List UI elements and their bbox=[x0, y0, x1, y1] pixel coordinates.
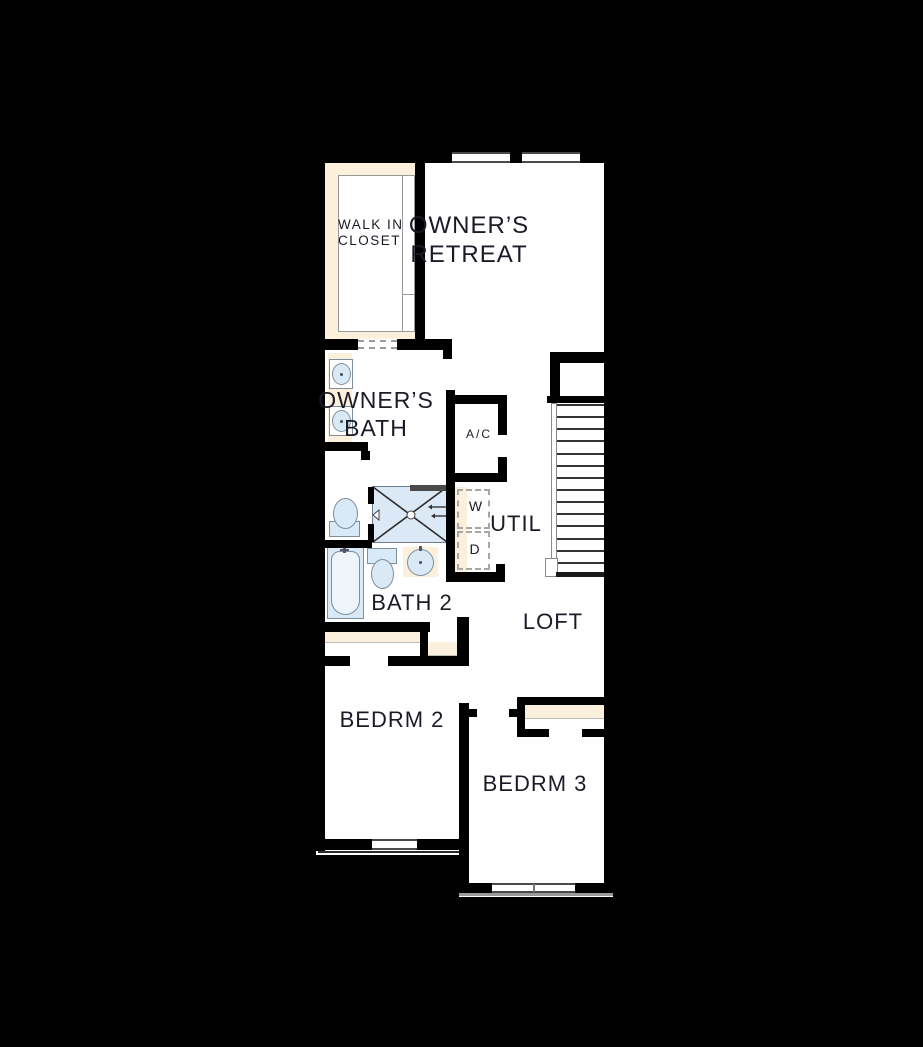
stair-tread bbox=[556, 477, 604, 479]
stair-tread bbox=[556, 538, 604, 540]
wall-bedroom3-closet-bottom-left bbox=[517, 729, 549, 737]
washer-label: W bbox=[469, 498, 483, 515]
walkin-closet-interior bbox=[338, 175, 415, 332]
wall-bath2-north bbox=[316, 540, 372, 548]
bedroom3-label: BEDRM 3 bbox=[483, 771, 588, 798]
bath2-sink-drain bbox=[419, 561, 422, 564]
wall-bath-north-right bbox=[397, 339, 452, 350]
window-bedroom3-mullion bbox=[533, 884, 535, 892]
wall-owners-bath-divider bbox=[316, 442, 368, 451]
wall-owners-bath-jamb bbox=[361, 451, 370, 460]
sill-line-bedroom3 bbox=[459, 893, 613, 896]
stair-tread bbox=[556, 428, 604, 430]
stair-tread bbox=[556, 440, 604, 442]
bath2-sink-faucet bbox=[419, 546, 422, 551]
window-retreat-2 bbox=[522, 152, 580, 163]
closet-shelf-line-vertical bbox=[402, 175, 403, 332]
wall-ac-util-divider bbox=[446, 473, 507, 482]
wall-util-bottom bbox=[446, 572, 505, 582]
bathtub-basin bbox=[331, 551, 360, 615]
stair-tread bbox=[556, 550, 604, 552]
walkin-closet-label: WALK IN CLOSET bbox=[338, 217, 404, 250]
foundation-line-bedroom2 bbox=[318, 851, 462, 853]
stair-tread bbox=[556, 513, 604, 515]
floorplan-canvas: WALK IN CLOSET OWNER’S RETREAT OWNER’S B… bbox=[0, 0, 923, 1047]
stair-treads bbox=[556, 404, 604, 576]
owners-toilet-bowl bbox=[333, 498, 358, 529]
wall-shower-stub-top bbox=[368, 487, 374, 504]
owners-retreat-label-line2: RETREAT bbox=[409, 240, 529, 269]
wall-bedroom2-closet-bottom-left bbox=[316, 656, 350, 666]
wall-bedroom3-closet-bottom-right bbox=[582, 729, 604, 737]
stair-tread bbox=[556, 416, 604, 418]
vanity-sink-1-drain bbox=[340, 373, 343, 376]
bedroom3-closet-shelf bbox=[525, 705, 604, 719]
stair-bottom-tread bbox=[556, 572, 604, 577]
wall-landing-bottom bbox=[547, 396, 613, 403]
stair-tread bbox=[556, 489, 604, 491]
shower bbox=[372, 486, 448, 543]
wall-bath-north-left bbox=[316, 339, 358, 350]
util-label: UTIL bbox=[490, 511, 542, 538]
stair-tread bbox=[556, 562, 604, 564]
wall-ac-jamb-lower bbox=[498, 457, 507, 474]
window-bedroom2 bbox=[372, 839, 417, 850]
wall-right bbox=[604, 151, 613, 894]
owners-bath-label: OWNER’S BATH bbox=[318, 386, 434, 442]
wall-left bbox=[316, 151, 325, 851]
closet-dashed-opening bbox=[358, 340, 397, 349]
wall-bath2-south bbox=[316, 622, 430, 632]
bedroom2-closet-shelf bbox=[325, 632, 420, 643]
bath2-label: BATH 2 bbox=[371, 590, 452, 617]
wall-ac-jamb-upper bbox=[498, 404, 507, 435]
dryer-label: D bbox=[469, 541, 480, 558]
stair-tread bbox=[556, 525, 604, 527]
wall-ac-top bbox=[446, 395, 507, 404]
closet-shelf-line-horizontal bbox=[402, 294, 415, 295]
shower-glass-door bbox=[410, 485, 448, 491]
wall-bedroom2-door-jamb bbox=[469, 709, 477, 717]
owners-bath-label-line1: OWNER’S bbox=[318, 386, 434, 414]
bedroom2-label: BEDRM 2 bbox=[340, 707, 445, 734]
wall-east-upper bbox=[457, 617, 469, 666]
wall-bedroom3-closet-top bbox=[517, 697, 604, 705]
owners-retreat-label: OWNER’S RETREAT bbox=[409, 211, 529, 270]
walkin-closet-label-line1: WALK IN bbox=[338, 217, 404, 233]
owners-bath-label-line2: BATH bbox=[318, 414, 434, 442]
stair-railing bbox=[551, 403, 557, 559]
window-retreat-1 bbox=[452, 152, 510, 163]
stair-tread bbox=[556, 404, 604, 406]
walkin-closet-label-line2: CLOSET bbox=[338, 233, 404, 249]
wall-util-stub bbox=[496, 564, 505, 573]
owners-retreat-label-line1: OWNER’S bbox=[409, 211, 529, 240]
wall-bedroom3-door-jamb bbox=[509, 709, 517, 717]
wall-hall-vertical bbox=[446, 390, 455, 578]
bath2-toilet-bowl bbox=[371, 559, 394, 589]
wall-bedroom2-closet-bottom-right bbox=[388, 656, 467, 666]
wall-bedroom2-3-divider bbox=[459, 703, 469, 891]
stair-tread bbox=[556, 501, 604, 503]
wall-retreat-door-jamb bbox=[443, 350, 452, 359]
stair-tread bbox=[556, 465, 604, 467]
ac-label: A/C bbox=[466, 427, 492, 442]
loft-label: LOFT bbox=[523, 609, 583, 636]
stair-tread bbox=[556, 453, 604, 455]
linen-closet-shelf bbox=[425, 642, 457, 656]
